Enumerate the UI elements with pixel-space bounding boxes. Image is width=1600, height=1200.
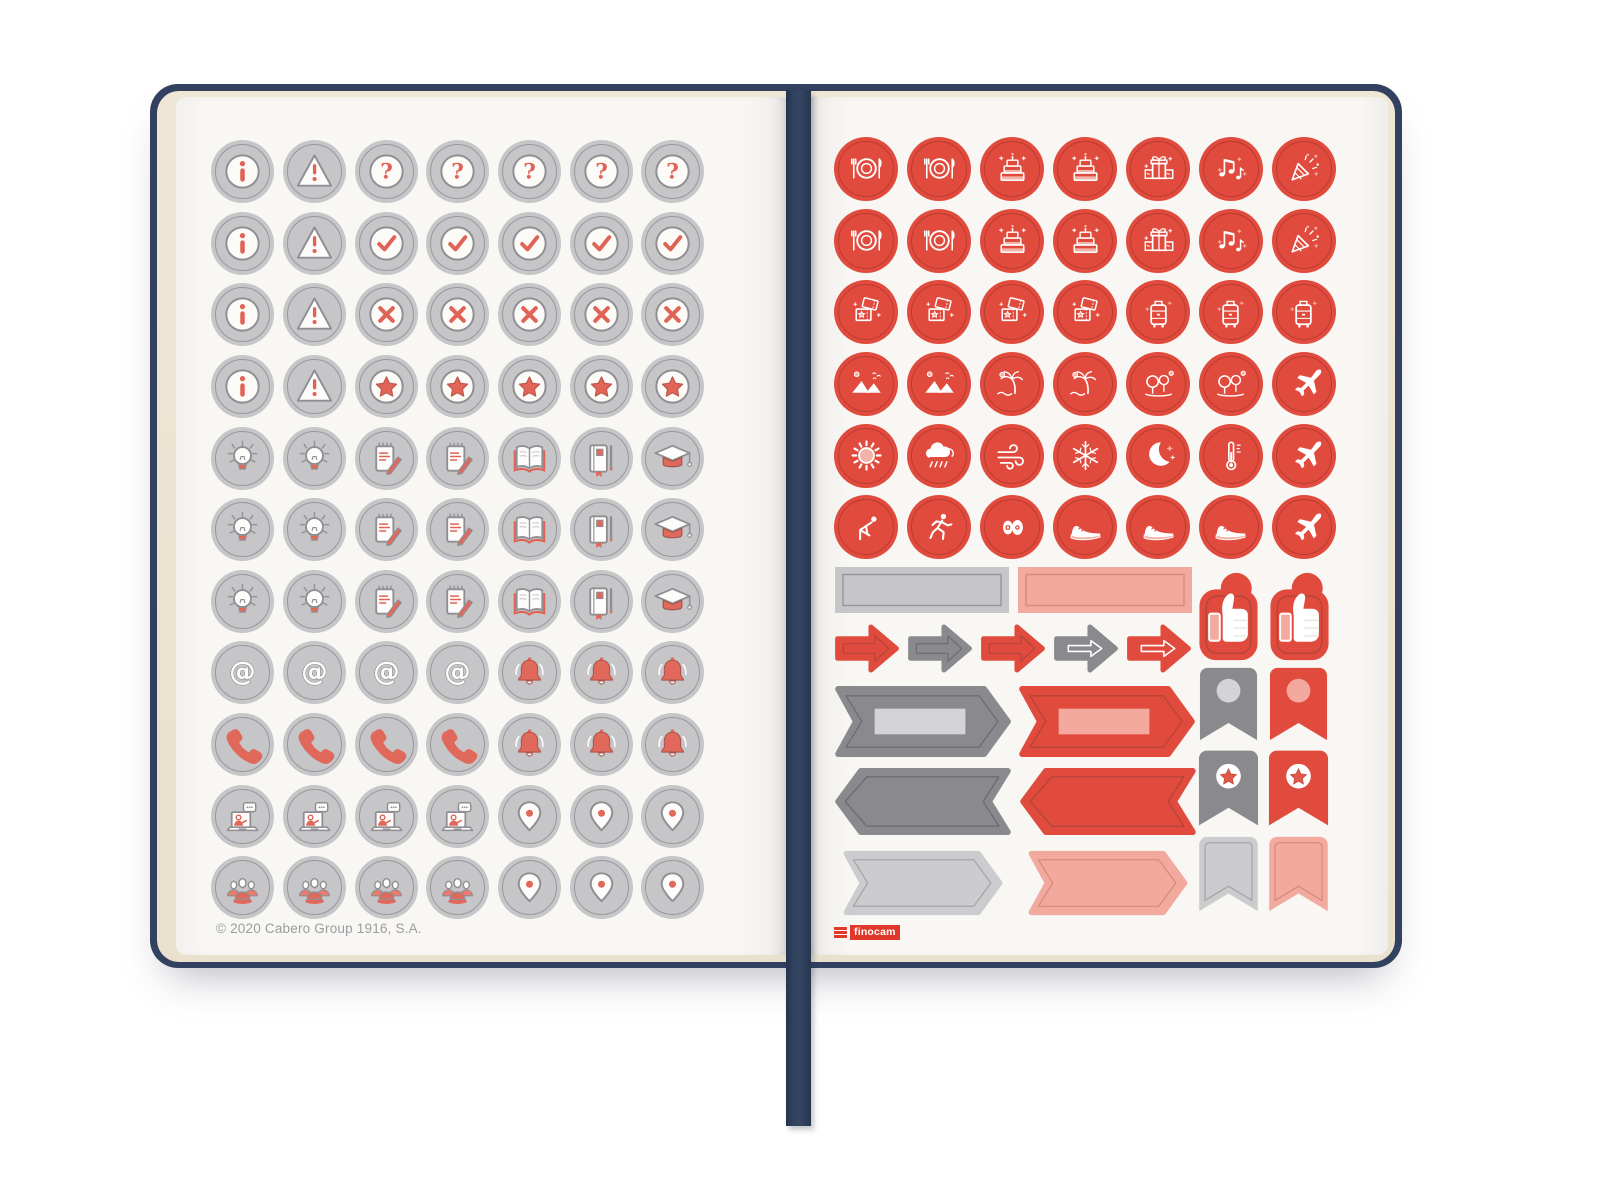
sticker-at xyxy=(283,641,346,704)
sticker-thermometer xyxy=(1199,424,1263,488)
chevron-banner-stickers-row xyxy=(834,685,1206,758)
sticker-at xyxy=(355,641,418,704)
sticker-gradcap xyxy=(641,498,704,561)
sticker-info xyxy=(211,212,274,275)
sticker-wind xyxy=(980,424,1044,488)
sticker-bulb xyxy=(211,498,274,561)
sticker-warning xyxy=(283,212,346,275)
sticker-phone xyxy=(283,713,346,776)
sticker-beach xyxy=(1053,352,1117,416)
sticker-phone xyxy=(211,713,274,776)
arrow-stickers-row xyxy=(834,622,1206,675)
sticker-question xyxy=(355,140,418,203)
sticker-cross xyxy=(355,283,418,346)
sticker-laptop xyxy=(283,785,346,848)
sticker-notebook xyxy=(570,498,633,561)
sticker-bell xyxy=(641,713,704,776)
sticker-pin xyxy=(570,856,633,919)
sticker-arrow-darkgray xyxy=(907,622,973,675)
sticker-plane xyxy=(1272,424,1336,488)
sticker-plate xyxy=(834,137,898,201)
sticker-star xyxy=(641,355,704,418)
sticker-luggage xyxy=(1199,280,1263,344)
sticker-notebook xyxy=(570,427,633,490)
sticker-bell xyxy=(498,713,561,776)
sticker-laptop xyxy=(211,785,274,848)
sticker-banner-left-darkgray xyxy=(834,767,1012,836)
sticker-flag-star-red xyxy=(1266,745,1331,831)
sticker-pin xyxy=(498,856,561,919)
sticker-people xyxy=(283,856,346,919)
sticker-bell xyxy=(641,641,704,704)
sticker-plane xyxy=(1272,495,1336,559)
sticker-flag-circle-red xyxy=(1266,665,1331,743)
sticker-flag-circle-darkgray xyxy=(1196,665,1261,743)
sticker-check xyxy=(426,212,489,275)
sticker-sneaker xyxy=(1126,495,1190,559)
sticker-warning xyxy=(283,355,346,418)
sticker-at xyxy=(211,641,274,704)
sticker-bulb xyxy=(211,427,274,490)
pointed-banner-stickers-row xyxy=(834,767,1206,836)
sticker-sneaker xyxy=(1053,495,1117,559)
red-sticker-grid xyxy=(830,133,1340,563)
sticker-check xyxy=(641,212,704,275)
shape-stickers-left-column xyxy=(834,566,1206,916)
sticker-question xyxy=(426,140,489,203)
sticker-notepad xyxy=(426,427,489,490)
sticker-question xyxy=(570,140,633,203)
sticker-pin xyxy=(641,785,704,848)
sticker-party xyxy=(1272,137,1336,201)
sticker-cross xyxy=(570,283,633,346)
sticker-check xyxy=(498,212,561,275)
sticker-star xyxy=(570,355,633,418)
sticker-gift xyxy=(1126,137,1190,201)
sticker-book xyxy=(498,427,561,490)
sticker-cross xyxy=(641,283,704,346)
sticker-cross xyxy=(498,283,561,346)
sticker-book xyxy=(498,498,561,561)
sticker-notebook xyxy=(570,570,633,633)
sticker-phone xyxy=(355,713,418,776)
sticker-pin xyxy=(498,785,561,848)
sticker-thumb-red xyxy=(1267,570,1332,663)
sticker-arrow-glyph-darkgray xyxy=(1053,622,1119,675)
sticker-tickets xyxy=(834,280,898,344)
sticker-plate xyxy=(834,209,898,273)
sticker-sneaker xyxy=(1199,495,1263,559)
thumbs-up-stickers-row xyxy=(1196,570,1342,663)
sticker-moon xyxy=(1126,424,1190,488)
sticker-phone xyxy=(426,713,489,776)
sticker-mountains xyxy=(834,352,898,416)
light-banner-stickers-row xyxy=(834,850,1206,916)
sticker-party xyxy=(1272,209,1336,273)
sticker-tickets xyxy=(1053,280,1117,344)
sticker-snowflake xyxy=(1053,424,1117,488)
gray-sticker-grid xyxy=(207,136,709,924)
sticker-pin xyxy=(641,856,704,919)
sticker-check xyxy=(355,212,418,275)
sticker-bulb xyxy=(283,498,346,561)
sticker-info xyxy=(211,283,274,346)
sticker-notepad xyxy=(355,427,418,490)
sticker-tickets xyxy=(980,280,1044,344)
sticker-laptop xyxy=(355,785,418,848)
finocam-bars-icon xyxy=(834,927,847,938)
sticker-pin xyxy=(570,785,633,848)
sticker-cake xyxy=(980,209,1044,273)
sticker-cake xyxy=(1053,209,1117,273)
sticker-cross xyxy=(426,283,489,346)
sticker-notepad xyxy=(426,498,489,561)
sticker-music xyxy=(1199,209,1263,273)
sticker-bulb xyxy=(283,427,346,490)
sticker-bulb xyxy=(211,570,274,633)
sticker-mountains xyxy=(907,352,971,416)
sticker-cake xyxy=(980,137,1044,201)
product-photo: © 2020 Cabero Group 1916, S.A. finocam xyxy=(0,0,1600,1200)
sticker-run xyxy=(907,495,971,559)
sticker-beach xyxy=(980,352,1044,416)
sticker-question xyxy=(641,140,704,203)
sticker-trees xyxy=(1199,352,1263,416)
right-sticker-sheet: finocam xyxy=(810,97,1388,955)
sticker-book xyxy=(498,570,561,633)
sticker-notepad xyxy=(355,570,418,633)
sticker-tickets xyxy=(907,280,971,344)
finocam-wordmark: finocam xyxy=(850,925,900,940)
sticker-music xyxy=(1199,137,1263,201)
sticker-bulb xyxy=(283,570,346,633)
sticker-flag-salmon xyxy=(1266,834,1331,914)
sticker-luggage xyxy=(1126,280,1190,344)
sticker-question xyxy=(498,140,561,203)
sticker-banner-right-red xyxy=(1018,685,1196,758)
left-sticker-sheet: © 2020 Cabero Group 1916, S.A. xyxy=(176,97,786,955)
sticker-info xyxy=(211,355,274,418)
sticker-rain xyxy=(907,424,971,488)
sticker-warning xyxy=(283,283,346,346)
sticker-yoga xyxy=(834,495,898,559)
sticker-arrow-red xyxy=(980,622,1046,675)
sticker-notepad xyxy=(426,570,489,633)
sticker-thumb-red xyxy=(1196,570,1261,663)
label-stickers-row xyxy=(834,566,1206,614)
sticker-star xyxy=(426,355,489,418)
sticker-star xyxy=(498,355,561,418)
plain-flag-stickers-row xyxy=(1196,834,1342,914)
sticker-warning xyxy=(283,140,346,203)
copyright-text: © 2020 Cabero Group 1916, S.A. xyxy=(216,921,422,936)
sticker-flag-star-darkgray xyxy=(1196,745,1261,831)
sticker-label-salmon xyxy=(1017,566,1193,614)
finocam-logo: finocam xyxy=(834,925,900,940)
sticker-check xyxy=(570,212,633,275)
sticker-bell xyxy=(570,713,633,776)
sticker-plane xyxy=(1272,352,1336,416)
sticker-plate xyxy=(907,209,971,273)
sticker-banner-left-red xyxy=(1019,767,1197,836)
sticker-bell xyxy=(570,641,633,704)
sticker-people xyxy=(355,856,418,919)
sticker-trees xyxy=(1126,352,1190,416)
circle-flag-stickers-row xyxy=(1196,665,1342,743)
sticker-cake xyxy=(1053,137,1117,201)
sticker-weights xyxy=(980,495,1044,559)
sticker-gradcap xyxy=(641,427,704,490)
sticker-laptop xyxy=(426,785,489,848)
sticker-notepad xyxy=(355,498,418,561)
sticker-plate xyxy=(907,137,971,201)
sticker-bell xyxy=(498,641,561,704)
sticker-flag-lightgray xyxy=(1196,834,1261,914)
sticker-star xyxy=(355,355,418,418)
sticker-label-gray xyxy=(834,566,1010,614)
sticker-gift xyxy=(1126,209,1190,273)
sticker-gradcap xyxy=(641,570,704,633)
sticker-luggage xyxy=(1272,280,1336,344)
star-flag-stickers-row xyxy=(1196,745,1342,831)
sticker-banner-light-salmon xyxy=(1019,850,1197,916)
sticker-info xyxy=(211,140,274,203)
sticker-banner-right-darkgray xyxy=(834,685,1012,758)
shape-stickers-right-column xyxy=(1196,570,1342,914)
sticker-arrow-glyph-red xyxy=(1126,622,1192,675)
sticker-at xyxy=(426,641,489,704)
sticker-people xyxy=(426,856,489,919)
sticker-banner-light-lightgray xyxy=(834,850,1012,916)
sticker-arrow-red xyxy=(834,622,900,675)
sticker-sun xyxy=(834,424,898,488)
sticker-people xyxy=(211,856,274,919)
bookmark-ribbon xyxy=(786,90,811,1126)
